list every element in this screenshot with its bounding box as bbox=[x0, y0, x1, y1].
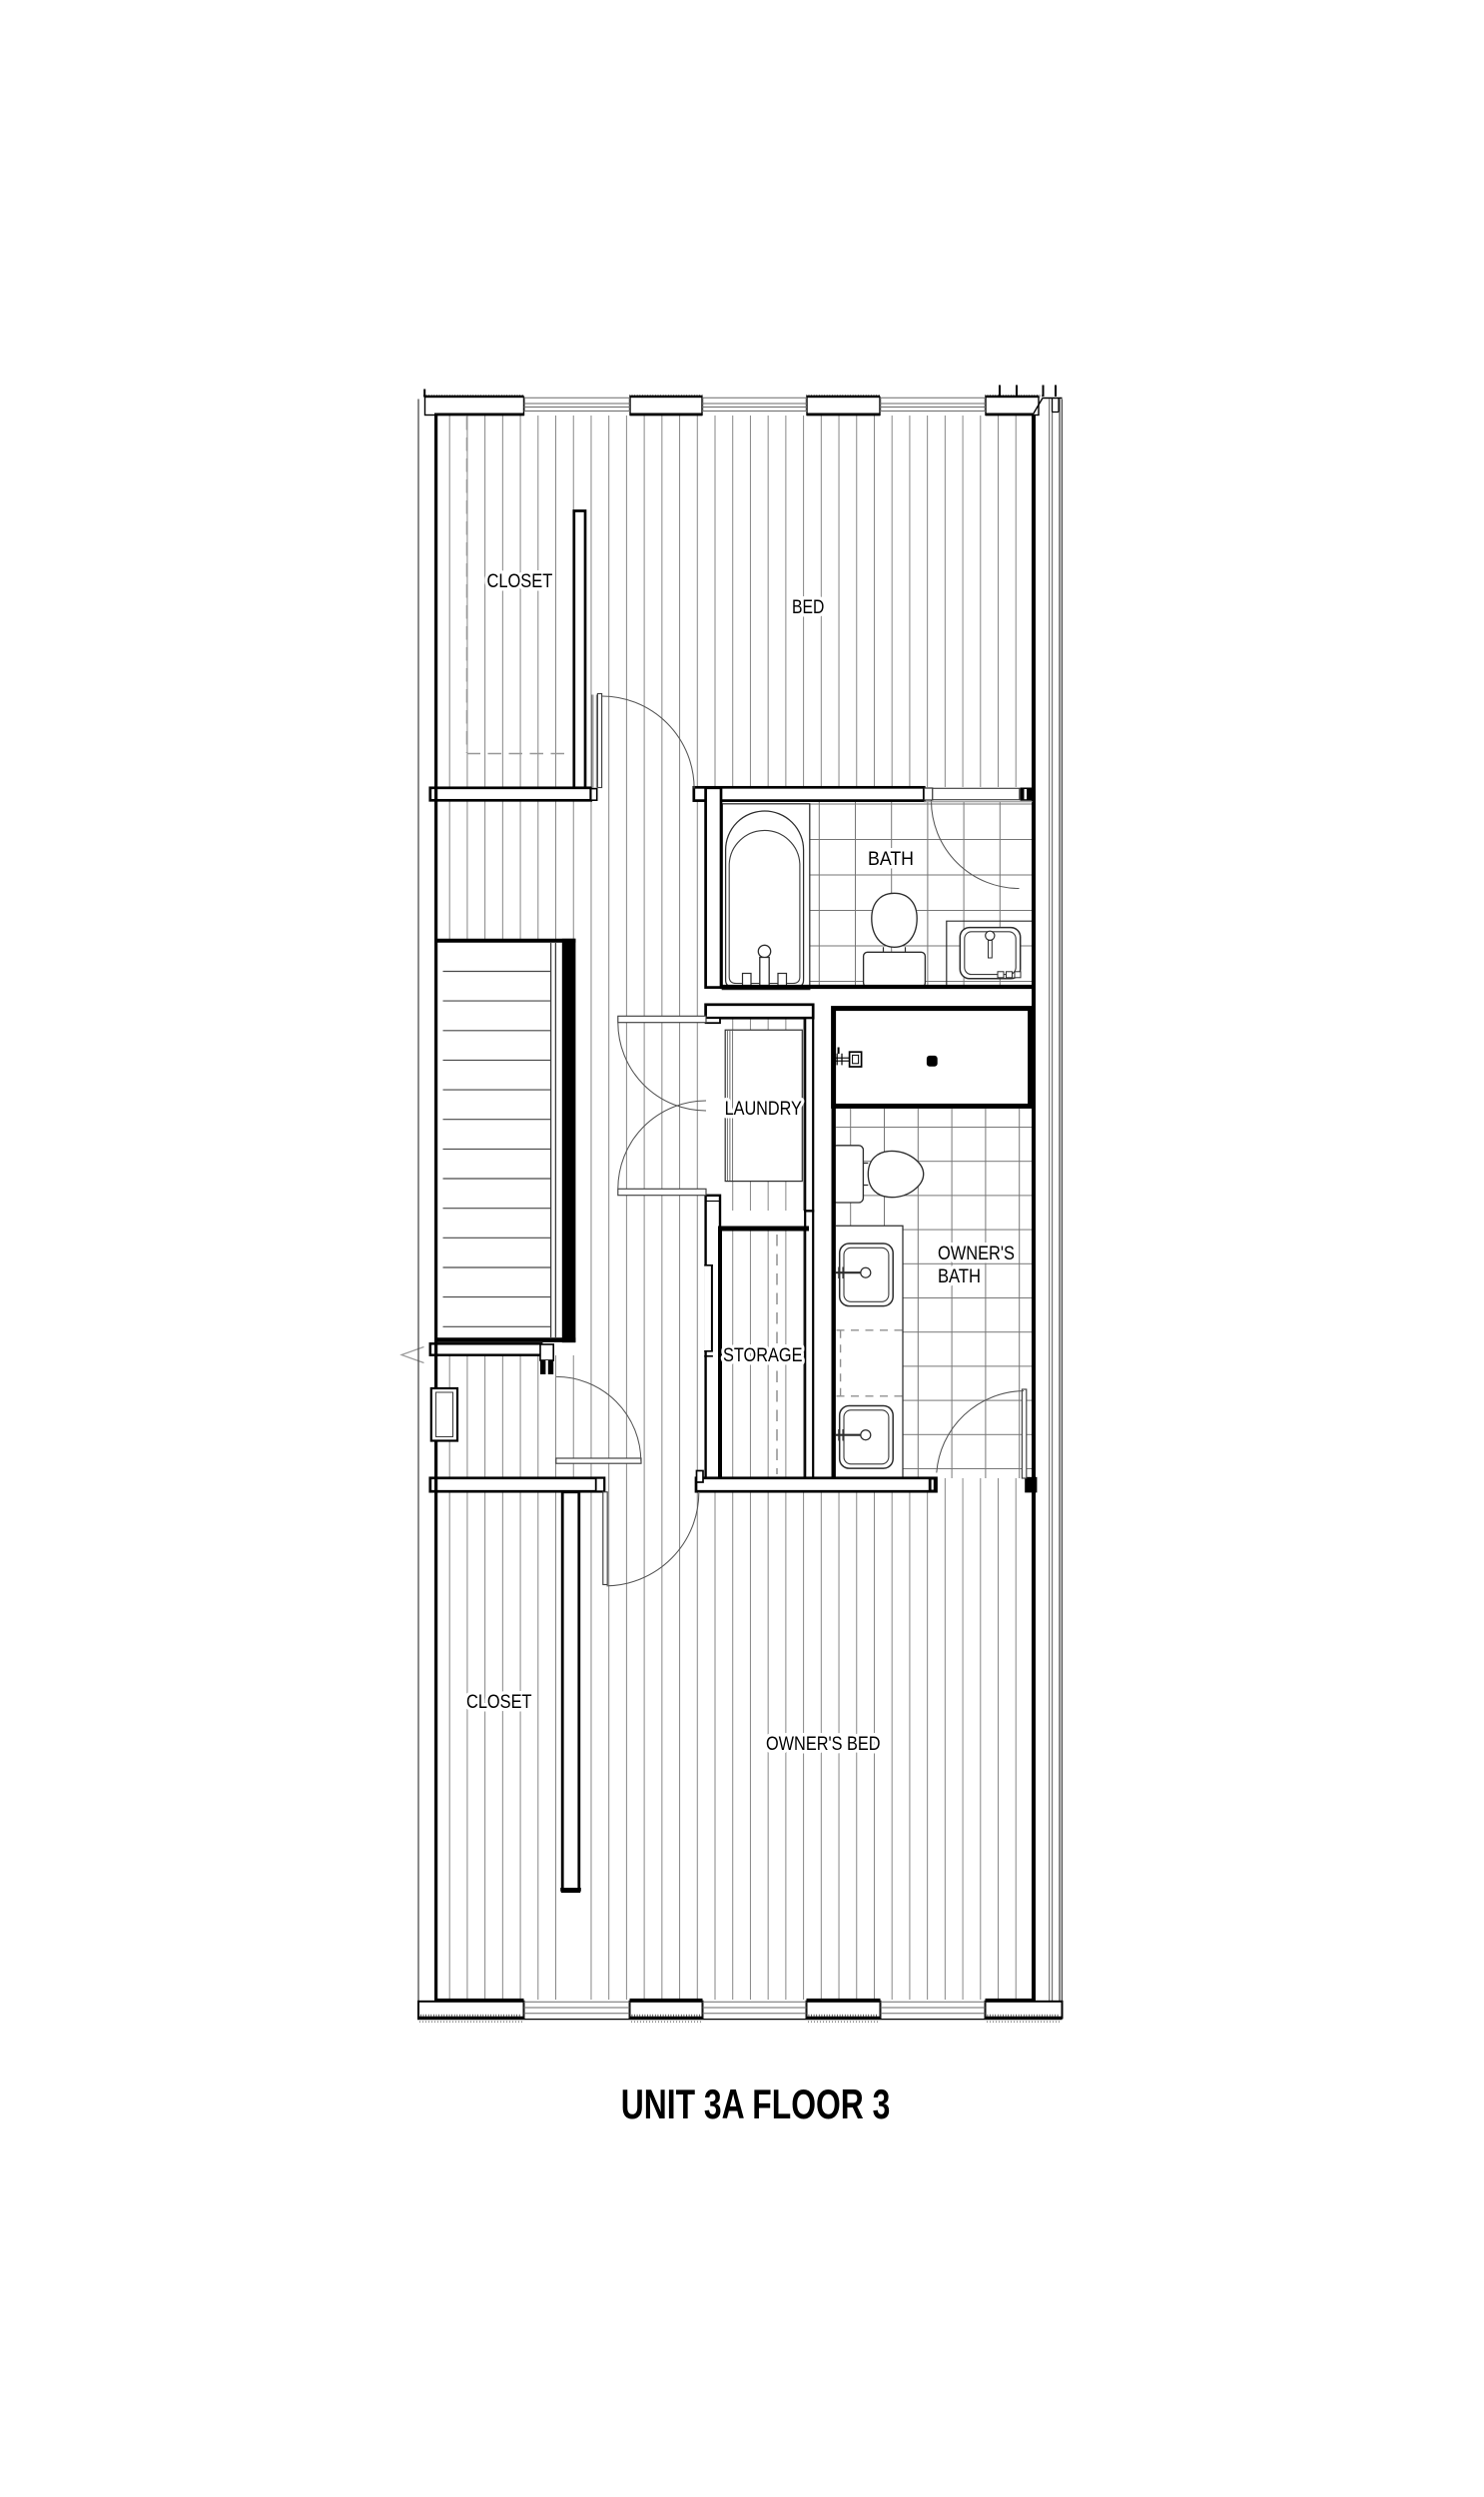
svg-text:CLOSET: CLOSET bbox=[487, 571, 553, 592]
svg-text:BATH: BATH bbox=[938, 1266, 981, 1287]
svg-text:STORAGE: STORAGE bbox=[723, 1345, 803, 1366]
svg-text:BED: BED bbox=[792, 597, 824, 618]
svg-text:OWNER'S BED: OWNER'S BED bbox=[766, 1734, 881, 1755]
svg-text:OWNER'S: OWNER'S bbox=[938, 1244, 1015, 1264]
svg-text:BATH: BATH bbox=[868, 849, 914, 870]
svg-text:CLOSET: CLOSET bbox=[466, 1692, 532, 1713]
svg-text:LAUNDRY: LAUNDRY bbox=[725, 1099, 802, 1120]
svg-text:UNIT 3A FLOOR 3: UNIT 3A FLOOR 3 bbox=[621, 2081, 891, 2127]
